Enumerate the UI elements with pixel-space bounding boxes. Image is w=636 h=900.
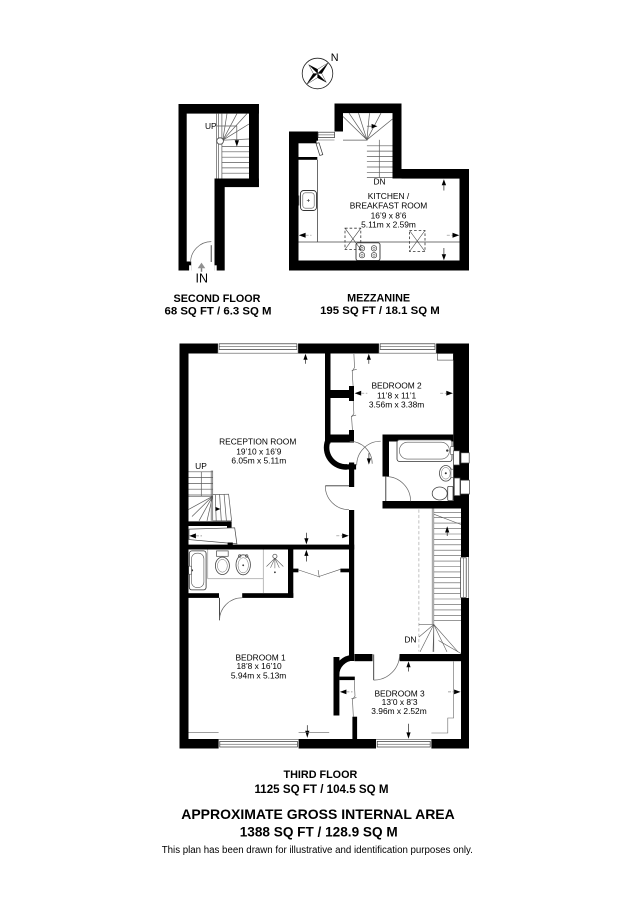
svg-text:1125 SQ FT / 104.5 SQ M: 1125 SQ FT / 104.5 SQ M: [254, 783, 388, 796]
svg-text:UP: UP: [195, 461, 207, 471]
svg-text:N: N: [331, 52, 339, 64]
svg-text:MEZZANINE: MEZZANINE: [347, 293, 410, 305]
svg-text:DN: DN: [373, 177, 385, 187]
svg-text:RECEPTION ROOM: RECEPTION ROOM: [219, 437, 296, 447]
svg-text:1388 SQ FT / 128.9 SQ M: 1388 SQ FT / 128.9 SQ M: [240, 825, 398, 840]
svg-text:APPROXIMATE GROSS INTERNAL ARE: APPROXIMATE GROSS INTERNAL AREA: [181, 806, 455, 822]
svg-text:UP: UP: [205, 121, 217, 131]
svg-text:THIRD FLOOR: THIRD FLOOR: [284, 769, 358, 781]
svg-text:IN: IN: [196, 272, 209, 286]
svg-text:195 SQ FT / 18.1 SQ M: 195 SQ FT / 18.1 SQ M: [320, 305, 440, 317]
svg-text:KITCHEN /: KITCHEN /: [368, 191, 410, 201]
svg-text:68 SQ FT / 6.3 SQ M: 68 SQ FT / 6.3 SQ M: [165, 305, 272, 317]
svg-text:3.56m x 3.38m: 3.56m x 3.38m: [369, 400, 424, 410]
svg-text:BREAKFAST ROOM: BREAKFAST ROOM: [350, 200, 428, 210]
svg-text:6.05m x 5.11m: 6.05m x 5.11m: [231, 456, 286, 466]
svg-text:5.11m x 2.59m: 5.11m x 2.59m: [361, 219, 416, 229]
svg-text:5.94m x 5.13m: 5.94m x 5.13m: [231, 670, 286, 680]
svg-text:BEDROOM 2: BEDROOM 2: [371, 380, 422, 390]
svg-text:3.96m x 2.52m: 3.96m x 2.52m: [371, 706, 426, 716]
svg-text:This plan has been drawn for i: This plan has been drawn for illustrativ…: [162, 845, 473, 856]
svg-text:SECOND FLOOR: SECOND FLOOR: [174, 293, 261, 305]
svg-text:DN: DN: [404, 635, 416, 645]
